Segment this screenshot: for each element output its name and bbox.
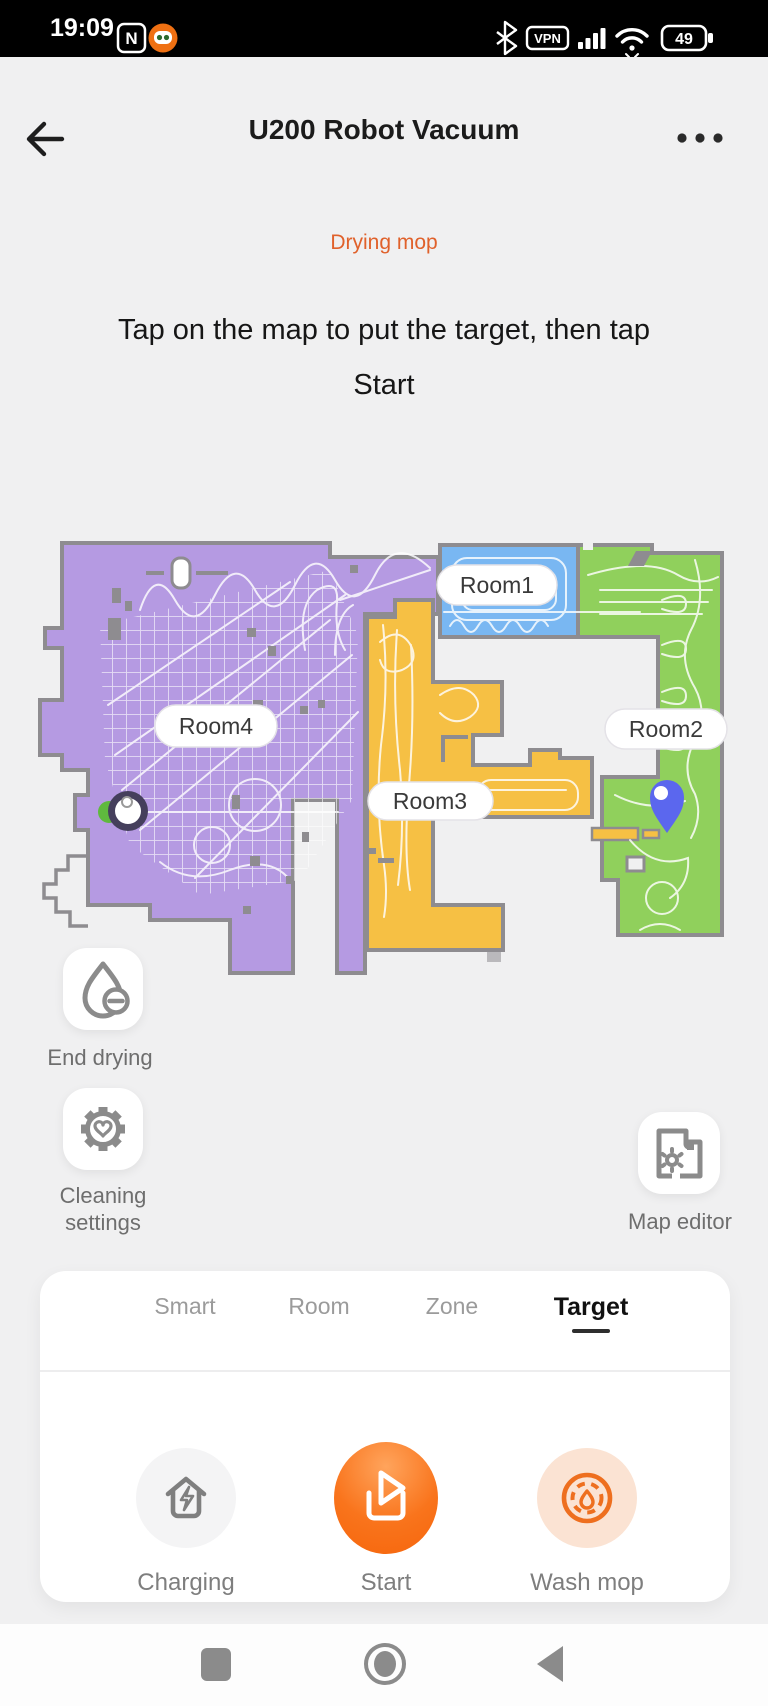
- back-nav-button[interactable]: [537, 1646, 563, 1682]
- signal-icon: [578, 28, 606, 49]
- gear-heart-icon: [63, 1088, 143, 1170]
- more-menu-button[interactable]: [672, 126, 738, 150]
- svg-text:Room2: Room2: [629, 716, 703, 742]
- wash-mop-button[interactable]: [537, 1448, 637, 1548]
- nfc-icon: N: [118, 24, 145, 52]
- end-drying-button[interactable]: [63, 948, 143, 1030]
- cleaning-settings-label: Cleaning settings: [10, 1182, 196, 1236]
- room2-label[interactable]: Room2: [605, 709, 727, 749]
- phone-screen: 19:09 N VPN: [0, 0, 768, 1706]
- tabs-divider: [40, 1370, 730, 1372]
- room3-label[interactable]: Room3: [368, 782, 493, 820]
- map-editor-icon: [638, 1112, 720, 1194]
- wash-mop-label: Wash mop: [530, 1569, 644, 1597]
- svg-text:Room1: Room1: [460, 572, 534, 598]
- android-nav-bar: [0, 1624, 768, 1706]
- app-icon: [149, 24, 178, 53]
- bluetooth-icon: [497, 22, 516, 54]
- droplet-minus-icon: [63, 948, 143, 1030]
- map-editor-label: Map editor: [590, 1208, 768, 1235]
- battery-icon: 49: [662, 26, 713, 50]
- floor-map[interactable]: Room1 Room4 Room2 Room3: [30, 532, 730, 984]
- svg-text:Room4: Room4: [179, 713, 253, 739]
- tab-target[interactable]: Target: [554, 1293, 629, 1322]
- recents-button[interactable]: [201, 1648, 231, 1681]
- start-play-icon: [334, 1442, 438, 1554]
- map-editor-button[interactable]: [638, 1112, 720, 1194]
- svg-text:VPN: VPN: [534, 31, 561, 46]
- home-button[interactable]: [366, 1645, 404, 1683]
- instruction-text: Tap on the map to put the target, then t…: [0, 303, 768, 413]
- vpn-badge: VPN: [527, 27, 568, 49]
- wash-mop-icon: [537, 1448, 637, 1548]
- start-button[interactable]: [334, 1442, 438, 1554]
- tab-smart[interactable]: Smart: [154, 1293, 215, 1320]
- cleaning-settings-button[interactable]: [63, 1088, 143, 1170]
- active-tab-underline: [572, 1329, 610, 1333]
- charging-button[interactable]: [136, 1448, 236, 1548]
- svg-text:Room3: Room3: [393, 788, 467, 814]
- status-bar-icons: N VPN: [0, 0, 768, 57]
- tab-room[interactable]: Room: [288, 1293, 349, 1320]
- end-drying-label: End drying: [10, 1044, 190, 1071]
- charging-dock-icon: [136, 1448, 236, 1548]
- charging-label: Charging: [137, 1569, 234, 1597]
- start-label: Start: [361, 1569, 412, 1597]
- room4-label[interactable]: Room4: [155, 705, 277, 747]
- room1-label[interactable]: Room1: [437, 565, 557, 605]
- svg-text:N: N: [125, 29, 137, 48]
- control-panel: Smart Room Zone Target Charging Start: [40, 1271, 730, 1602]
- status-bar: 19:09 N VPN: [0, 0, 768, 57]
- staircase-wall: [44, 856, 88, 926]
- robot-status-text: Drying mop: [0, 231, 768, 255]
- wifi-icon: [617, 30, 647, 57]
- tab-zone[interactable]: Zone: [426, 1293, 478, 1320]
- svg-text:49: 49: [675, 31, 693, 48]
- page-title: U200 Robot Vacuum: [0, 114, 768, 146]
